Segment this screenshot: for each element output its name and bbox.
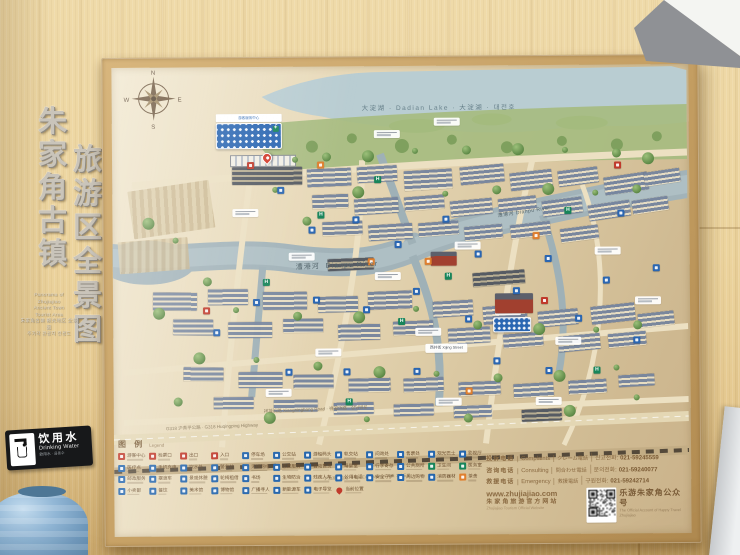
legend-sublabel-bar: [344, 480, 360, 482]
legend-sublabel-bar: [158, 482, 170, 484]
legend-marker-icon: [242, 487, 249, 494]
facility-marker-icon: [277, 187, 284, 194]
shop-marker-icon: [317, 162, 324, 169]
contact-row: 咨询电话Consulting問合わせ電話문의전화:021-59240077: [486, 464, 680, 474]
legend-marker-icon: [211, 487, 218, 494]
hotel-marker-icon: H: [374, 176, 381, 183]
tree: [412, 148, 418, 154]
shop-marker-icon: [466, 388, 473, 395]
tree: [593, 327, 599, 333]
legend-sublabel-bar: [375, 457, 387, 459]
official-account-zh: 乐游朱家角公众号: [619, 488, 683, 508]
legend-item: 行李寄存: [366, 463, 397, 471]
legend-item: 停车场: [242, 452, 273, 460]
legend-marker-icon: [149, 464, 156, 471]
facility-marker-icon: [413, 288, 420, 295]
building-block: [183, 367, 223, 381]
sign-character: 全: [73, 248, 102, 277]
legend-marker-icon: [118, 465, 125, 472]
legend-item: 公共厕所: [397, 462, 428, 470]
contact-label-ja: クレーム電話: [553, 455, 588, 462]
legend-sublabel-bar: [406, 457, 418, 459]
facility-marker-icon: [213, 329, 220, 336]
legend-sublabel-bar: [375, 480, 391, 482]
name-bubble: [374, 130, 400, 138]
contact-label-zh: 投诉电话: [486, 453, 514, 462]
building-block: [214, 397, 254, 409]
legend-item: 当前位置: [335, 486, 366, 494]
legend-sublabel-bar: [158, 493, 166, 495]
tree: [174, 398, 183, 407]
contact-phone-number: 021-59245559: [620, 455, 659, 461]
parking-lot: [232, 167, 302, 185]
gate-marker-icon: [203, 307, 210, 314]
tree: [433, 371, 439, 377]
name-bubble: [232, 209, 258, 217]
legend-sublabel-bar: [313, 469, 329, 471]
facility-marker-icon: [352, 216, 359, 223]
website-block: www.zhujiajiao.com 朱家角旅游官方网站 Zhujiajiao …: [486, 489, 558, 512]
tree: [512, 143, 524, 155]
tree: [413, 306, 419, 312]
building-block: [173, 319, 213, 335]
legend-item: 无线网络: [242, 463, 273, 471]
legend-marker-icon: [397, 451, 404, 458]
sign-subtitle-multilingual: Panorama ofZhujiajiaoAncient TownTourist…: [20, 292, 78, 338]
contact-label-ja: 問合わせ電話: [552, 466, 587, 473]
tree: [642, 152, 654, 164]
name-bubble: [436, 398, 462, 406]
contact-row: 救援电话Emergency救援電話구원전화:021-59242714: [486, 475, 680, 485]
building-block: [403, 377, 444, 393]
legend-sublabel-bar: [251, 458, 263, 460]
drinking-water-icon: [9, 433, 36, 466]
website-name-zh: 朱家角旅游官方网站: [486, 498, 558, 507]
tree: [313, 362, 322, 371]
legend-label: 行李寄存: [375, 463, 393, 468]
sign-character: 旅: [73, 146, 102, 175]
sign-character: 朱: [38, 108, 67, 137]
legend-label: 母婴室: [344, 463, 358, 468]
tree: [293, 312, 302, 321]
wooden-map-frame: N E S W HHHHHHHHH 游客服务中心 大淀湖 · Dadian La…: [101, 54, 701, 547]
legend-label: 影视厅: [468, 450, 482, 455]
legend-label: 观光巴士: [437, 451, 455, 456]
services-icon-panel: [216, 123, 282, 149]
tree: [634, 394, 640, 400]
legend-item: 自动售货: [304, 463, 335, 471]
legend-item: 饮水处: [180, 464, 211, 472]
contact-label-ja: 救援電話: [554, 478, 579, 485]
qr-code: [586, 488, 616, 523]
facility-marker-icon: [545, 367, 552, 374]
legend-item: 母婴室: [335, 463, 366, 471]
sign-title-column-1: 朱家角古镇: [38, 108, 67, 269]
legend-marker-icon: [242, 452, 249, 459]
tree: [173, 238, 179, 244]
building-block: [394, 403, 434, 416]
compass-e: E: [178, 98, 182, 104]
building-block: [354, 197, 399, 216]
sign-character: 区: [73, 214, 102, 243]
legend-sublabel-bar: [406, 468, 422, 470]
legend-label: 安全守护: [375, 474, 393, 479]
legend-marker-icon: [242, 475, 249, 482]
facility-marker-icon: [493, 357, 500, 364]
legend-label: 餐饮: [158, 487, 167, 492]
legend-item: 周边购物: [397, 474, 428, 482]
legend-sublabel-bar: [345, 492, 361, 494]
legend-item: 美术馆: [180, 487, 211, 495]
legend-title-en: Legend: [149, 443, 164, 448]
building-block: [618, 373, 655, 387]
legend-label: 轨交站: [344, 451, 358, 456]
facility-marker-icon: [395, 241, 402, 248]
legend-label: 手机充电: [158, 464, 176, 469]
contact-label-en: Consulting: [517, 467, 548, 473]
name-bubble: [635, 296, 661, 304]
tree: [494, 373, 503, 382]
sign-subtitle-line: 주가각 관광지 전경도: [20, 331, 78, 338]
contact-phone-number: 021-59240077: [619, 467, 658, 473]
legend-sublabel-bar: [189, 458, 197, 460]
legend-marker-icon: [428, 474, 435, 481]
legend-item: 公用电话: [335, 474, 366, 482]
name-bubble: [434, 118, 460, 126]
contact-label-zh: 咨询电话: [486, 465, 514, 474]
contact-label-ko: 구원전화:: [581, 476, 608, 485]
legend-marker-icon: [118, 453, 125, 460]
legend-label: 残疾人车: [313, 475, 331, 480]
hotel-marker-icon: H: [317, 212, 324, 219]
sign-character: 镇: [38, 240, 67, 269]
legend-item: 轮椅租借: [211, 475, 242, 483]
legend-label: 出口: [189, 452, 198, 457]
shop-marker-icon: [533, 232, 540, 239]
legend-sublabel-bar: [313, 492, 329, 494]
legend-sublabel-bar: [437, 480, 453, 482]
parking-lot: [522, 408, 562, 422]
legend-sublabel-bar: [127, 494, 139, 496]
legend: 图 例 Legend 游客中心检票口出口入口停车场公交站游船码头轨交站问询处售票…: [118, 436, 486, 499]
legend-label: 生物防治: [282, 475, 300, 480]
legend-sublabel-bar: [468, 480, 476, 482]
first-aid-icon: [273, 126, 279, 132]
legend-sublabel-bar: [189, 493, 201, 495]
legend-marker-icon: [273, 463, 280, 470]
tree: [442, 191, 448, 197]
building-block: [368, 290, 413, 310]
legend-grid: 游客中心检票口出口入口停车场公交站游船码头轨交站问询处售票处观光巴士影视厅医疗点…: [118, 450, 486, 495]
legend-marker-icon: [335, 451, 342, 458]
facility-marker-icon: [575, 315, 582, 322]
legend-item: 售票处: [397, 451, 428, 459]
legend-item: 卫生间: [428, 462, 459, 470]
legend-label: 公共厕所: [406, 462, 424, 467]
drinking-water-sign: 饮用水 Drinking Water 飲用水 · 음용수: [5, 425, 93, 470]
hotel-marker-icon: H: [445, 273, 452, 280]
legend-label: 无线网络: [251, 464, 269, 469]
drinking-water-sub: 飲用水 · 음용수: [39, 450, 80, 457]
legend-label: 广播寻人: [251, 487, 269, 492]
building-block: [568, 379, 607, 395]
legend-item: 消防器材: [428, 474, 459, 482]
tree: [612, 148, 621, 157]
legend-marker-icon: [335, 475, 342, 482]
sign-character: 古: [38, 207, 67, 236]
legend-label: 卫生间: [437, 462, 451, 467]
legend-item: 观光巴士: [428, 451, 459, 459]
legend-sublabel-bar: [406, 480, 422, 482]
building-block: [318, 296, 358, 313]
legend-label: 电子导览: [313, 486, 331, 491]
temple-building: [431, 252, 457, 266]
legend-item: 书场: [242, 475, 273, 483]
legend-sublabel-bar: [251, 470, 267, 472]
legend-label: 饮水处: [189, 464, 203, 469]
legend-label: 邮政服务: [127, 476, 145, 481]
legend-label: 摆渡车: [158, 476, 172, 481]
legend-sublabel-bar: [251, 481, 259, 483]
sign-character: 角: [38, 174, 67, 203]
legend-label: 当前位置: [345, 486, 363, 491]
legend-label: 医疗点: [127, 464, 141, 469]
legend-marker-icon: [273, 452, 280, 459]
facility-marker-icon: [253, 299, 260, 306]
gate-marker-icon: [614, 161, 621, 168]
legend-sublabel-bar: [158, 470, 174, 472]
tree: [302, 217, 311, 226]
legend-marker-icon: [304, 486, 311, 493]
official-account-en: The Official Account of Happy Travel Zhu…: [619, 508, 683, 518]
legend-label: 问询处: [375, 451, 389, 456]
legend-sublabel-bar: [282, 493, 298, 495]
facility-marker-icon: [363, 306, 370, 313]
legend-sublabel-bar: [313, 481, 329, 483]
legend-title-zh: 图 例: [118, 439, 145, 450]
name-bubble: [455, 241, 481, 249]
sign-character: 游: [73, 180, 102, 209]
legend-marker-icon: [149, 487, 156, 494]
legend-label: 售票处: [406, 451, 420, 456]
legend-item: 电子导览: [304, 486, 335, 494]
building-block: [283, 319, 323, 333]
legend-marker-icon: [459, 451, 466, 458]
contact-row: 投诉电话Complaintsクレーム電話신고전화:021-59245559: [486, 452, 680, 462]
legend-marker-icon: [273, 487, 280, 494]
legend-sublabel-bar: [251, 493, 267, 495]
tree: [562, 147, 568, 153]
name-bubble: [375, 272, 401, 280]
legend-marker-icon: [118, 476, 125, 483]
legend-marker-icon: [304, 463, 311, 470]
name-bubble: [555, 337, 581, 345]
facility-marker-icon: [313, 297, 320, 304]
legend-row: 游客中心检票口出口入口停车场公交站游船码头轨交站问询处售票处观光巴士影视厅: [118, 450, 486, 460]
name-bubble: [415, 328, 441, 336]
tree: [613, 364, 619, 370]
legend-sublabel-bar: [344, 469, 356, 471]
legend-marker-icon: [211, 475, 218, 482]
legend-label: 停车场: [251, 452, 265, 457]
legend-marker-icon: [118, 488, 125, 495]
contact-phone-number: 021-59242714: [610, 478, 649, 484]
hotel-marker-icon: H: [263, 279, 270, 286]
legend-sublabel-bar: [127, 459, 143, 461]
contact-label-en: Emergency: [517, 479, 550, 485]
legend-marker-icon: [180, 464, 187, 471]
legend-label: 入口: [220, 452, 229, 457]
legend-sublabel-bar: [220, 493, 232, 495]
legend-item: 检票口: [149, 453, 180, 461]
legend-sublabel-bar: [282, 469, 298, 471]
legend-item: 出口: [180, 452, 211, 460]
legend-sublabel-bar: [437, 457, 453, 459]
legend-label: 书场: [251, 475, 260, 480]
building-block: [238, 372, 282, 388]
tree: [473, 320, 482, 329]
building-block: [448, 326, 491, 344]
legend-item: 手机充电: [149, 464, 180, 472]
legend-item: 安全守护: [366, 474, 397, 482]
legend-sublabel-bar: [189, 470, 201, 472]
legend-item: 警务站: [211, 464, 242, 472]
legend-label: 轮椅租借: [220, 475, 238, 480]
legend-sublabel-bar: [468, 468, 480, 470]
legend-marker-icon: [304, 452, 311, 459]
facility-marker-icon: [513, 287, 520, 294]
gate-marker-icon: [247, 162, 254, 169]
building-block: [338, 324, 380, 341]
hotel-marker-icon: H: [593, 367, 600, 374]
tree: [142, 218, 154, 230]
tree: [233, 307, 239, 313]
kezhi-garden-building: [495, 293, 533, 313]
contact-label-en: Complaints: [517, 456, 550, 462]
legend-marker-icon: [180, 476, 187, 483]
legend-label: 自动售货: [313, 463, 331, 468]
legend-label: 警务站: [220, 464, 234, 469]
tree: [153, 308, 165, 320]
legend-row: 医疗点手机充电饮水处警务站无线网络志愿服务自动售货母婴室行李寄存公共厕所卫生间医…: [118, 462, 486, 472]
legend-marker-icon: [242, 464, 249, 471]
legend-item: 博物馆: [211, 487, 242, 495]
facility-marker-icon: [545, 255, 552, 262]
building-block: [208, 289, 248, 305]
legend-label: 志愿服务: [282, 463, 300, 468]
adjacent-sign-edge: [707, 406, 740, 555]
legend-sublabel-bar: [220, 458, 228, 460]
tree: [364, 416, 370, 422]
legend-label: 小卖部: [127, 488, 141, 493]
water-cooler-bottle-cap: [18, 486, 66, 497]
legend-item: 摆渡车: [149, 476, 180, 484]
building-block: [228, 322, 272, 338]
tree: [352, 186, 364, 198]
legend-label: 检票口: [158, 453, 172, 458]
name-bubble: [266, 389, 292, 397]
shop-marker-icon: [425, 258, 432, 265]
name-bubble: [315, 348, 341, 356]
hotel-marker-icon: H: [398, 318, 405, 325]
legend-sublabel-bar: [189, 482, 205, 484]
tourist-map: N E S W HHHHHHHHH 游客服务中心 大淀湖 · Dadian La…: [111, 64, 691, 537]
services-icon-panel-2: [493, 317, 531, 332]
tree: [362, 150, 374, 162]
contact-label-zh: 救援电话: [486, 476, 514, 485]
legend-sublabel-bar: [282, 458, 294, 460]
legend-sublabel-bar: [220, 470, 232, 472]
legend-marker-icon: [428, 462, 435, 469]
tree: [373, 366, 385, 378]
water-cooler-bottle: [0, 492, 88, 555]
legend-marker-icon: [459, 474, 466, 481]
building-block: [513, 382, 554, 398]
street-label: 西井街 Xijing Street: [425, 344, 467, 353]
facility-marker-icon: [413, 368, 420, 375]
building-block: [312, 194, 349, 209]
tree: [203, 277, 212, 286]
legend-sublabel-bar: [127, 470, 139, 472]
facility-marker-icon: [653, 264, 660, 271]
legend-sublabel-bar: [344, 457, 356, 459]
legend-item: 餐饮: [149, 487, 180, 495]
official-account-block: 乐游朱家角公众号 The Official Account of Happy T…: [619, 488, 683, 518]
legend-sublabel-bar: [468, 456, 480, 458]
legend-item: 新能源车: [273, 486, 304, 494]
contact-label-ko: 신고전화:: [591, 452, 618, 461]
farm-field: [118, 237, 190, 274]
legend-row: 邮政服务摆渡车景观休憩轮椅租借书场生物防治残疾人车公用电话安全守护周边购物消防器…: [118, 474, 486, 484]
legend-marker-icon: [397, 463, 404, 470]
compass-s: S: [151, 125, 155, 131]
name-bubble: [536, 397, 562, 405]
facility-marker-icon: [308, 227, 315, 234]
legend-label: 景观休憩: [189, 476, 207, 481]
visitor-center-label: 游客服务中心: [216, 114, 282, 122]
legend-item: 轨交站: [335, 451, 366, 459]
legend-label: 游船码头: [313, 451, 331, 456]
legend-item: 问询处: [366, 451, 397, 459]
hotel-marker-icon: H: [564, 207, 571, 214]
building-block: [263, 292, 307, 310]
tree: [592, 190, 598, 196]
legend-label: 茶舍: [468, 474, 477, 479]
legend-item: 广播寻人: [242, 487, 273, 495]
legend-item: 生物防治: [273, 475, 304, 483]
legend-item: 志愿服务: [273, 463, 304, 471]
legend-row: 小卖部餐饮美术馆博物馆广播寻人新能源车电子导览当前位置: [118, 485, 486, 496]
tree: [193, 352, 205, 364]
tree: [464, 414, 473, 423]
legend-label: 公交站: [282, 452, 296, 457]
legend-label: 医务室: [468, 462, 482, 467]
tree: [553, 370, 565, 382]
legend-pin-icon: [335, 486, 343, 494]
tree: [492, 185, 501, 194]
legend-item: 医疗点: [118, 464, 149, 472]
legend-sublabel-bar: [220, 481, 236, 483]
legend-item: 邮政服务: [118, 476, 149, 484]
legend-marker-icon: [211, 464, 218, 471]
legend-label: 周边购物: [406, 474, 424, 479]
building-block: [348, 378, 390, 393]
tree: [253, 357, 259, 363]
legend-marker-icon: [273, 475, 280, 482]
legend-marker-icon: [211, 452, 218, 459]
facility-marker-icon: [343, 368, 350, 375]
lake-label: 大淀湖 · Dadian Lake · 大淀湖 · 대전호: [362, 101, 516, 112]
